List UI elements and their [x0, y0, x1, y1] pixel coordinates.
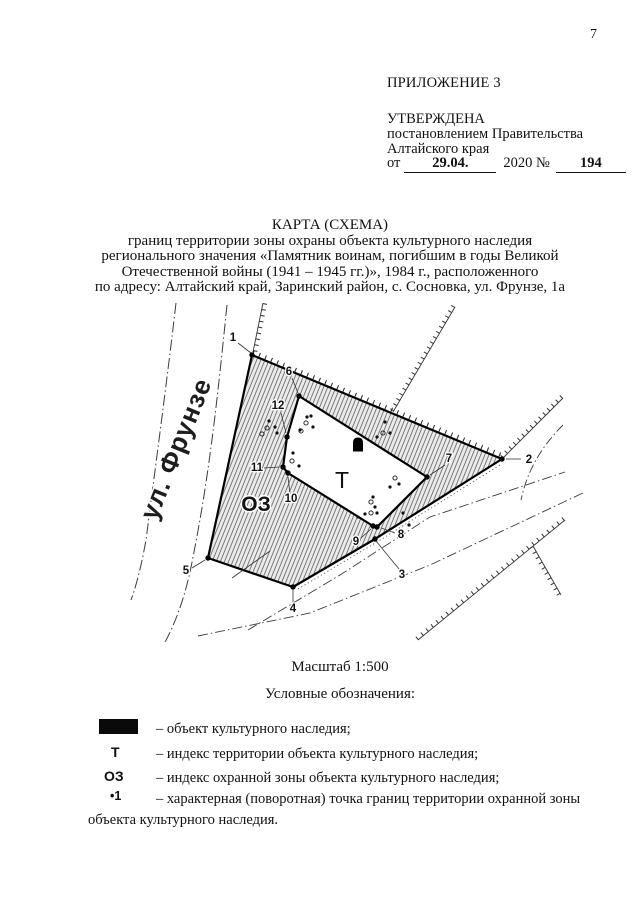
scale-label: Масштаб 1:500 [25, 659, 639, 676]
date-prefix: от [387, 155, 400, 171]
legend-text-territory-index: – индекс территории объекта культурного … [156, 746, 478, 763]
legend-text-turning-point: – характерная (поворотная) точка границ … [156, 791, 580, 808]
point-label-4: 4 [290, 603, 297, 615]
page-number: 7 [590, 27, 597, 43]
legend-text-zone-index: – индекс охранной зоны объекта культурно… [156, 770, 499, 787]
legend-text-turning-point-continuation: объекта культурного наследия. [88, 812, 278, 829]
title-line-3: регионального значения «Памятник воинам,… [25, 249, 635, 265]
point-label-7: 7 [446, 453, 452, 465]
title-line-1: КАРТА (СХЕМА) [25, 218, 635, 234]
zone-index-symbol: ОЗ [104, 768, 124, 784]
title-line-4: Отечественной войны (1941 – 1945 гг.)», … [25, 265, 635, 281]
fence-lines [253, 303, 565, 640]
legend-heading: Условные обозначения: [25, 686, 639, 703]
point-label-10: 10 [285, 493, 298, 505]
approval-date-row: от29.04.2020 №194 [387, 155, 626, 173]
point-label-9: 9 [353, 536, 359, 548]
approval-date-value: 29.04. [404, 155, 496, 173]
map-schema: 1 2 3 4 5 6 7 8 9 10 11 12 ОЗ Т ул. Фрун… [95, 295, 605, 660]
heritage-object-symbol [99, 719, 138, 734]
map-title-block: КАРТА (СХЕМА) границ территории зоны охр… [25, 218, 635, 296]
appendix-label: ПРИЛОЖЕНИЕ 3 [387, 75, 501, 92]
point-label-3: 3 [399, 569, 405, 581]
point-label-5: 5 [183, 565, 190, 577]
year-and-number-label: 2020 № [503, 155, 549, 171]
territory-index-symbol: Т [111, 744, 120, 760]
title-line-2: границ территории зоны охраны объекта ку… [25, 234, 635, 250]
point-label-6: 6 [286, 366, 292, 378]
legend-text-heritage-object: – объект культурного наследия; [156, 721, 351, 738]
point-label-2: 2 [526, 454, 532, 466]
document-number-value: 194 [556, 155, 626, 173]
monument-icon [353, 438, 363, 452]
territory-index-label: Т [335, 467, 349, 493]
title-line-5: по адресу: Алтайский край, Заринский рай… [25, 280, 635, 296]
zone-index-label: ОЗ [241, 493, 271, 516]
point-label-1: 1 [230, 332, 237, 344]
document-page: 7 ПРИЛОЖЕНИЕ 3 УТВЕРЖДЕНА постановлением… [0, 0, 639, 905]
point-label-12: 12 [272, 400, 285, 412]
turning-point-symbol: •1 [110, 789, 121, 803]
street-name-label: ул. Фрунзе [134, 373, 218, 523]
point-label-8: 8 [398, 529, 405, 541]
point-label-11: 11 [251, 462, 264, 474]
